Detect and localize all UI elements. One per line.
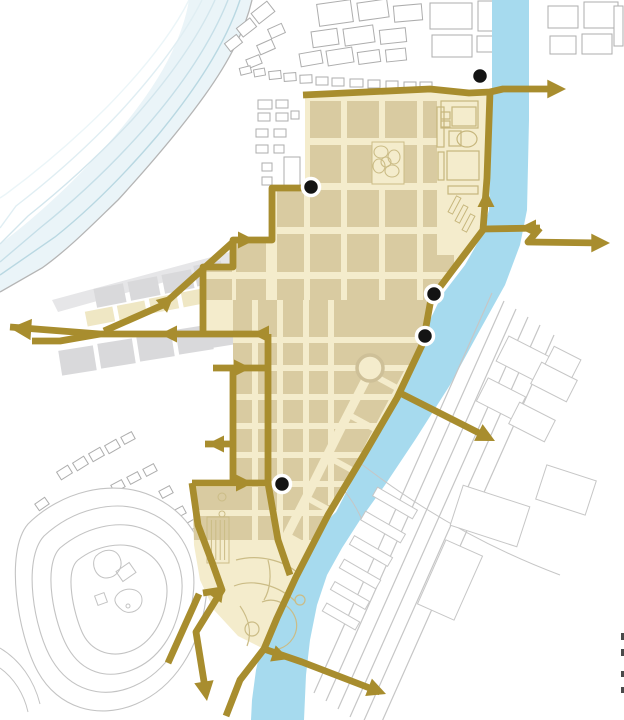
riverfront-building bbox=[322, 603, 359, 630]
building bbox=[256, 145, 268, 153]
building bbox=[317, 0, 354, 26]
building bbox=[379, 28, 406, 45]
park-block bbox=[372, 142, 404, 184]
riverfront-building bbox=[349, 536, 392, 567]
location-dot bbox=[274, 476, 291, 493]
plaza-circle bbox=[357, 355, 383, 381]
city-block bbox=[236, 190, 266, 227]
building bbox=[121, 432, 135, 445]
building bbox=[430, 3, 472, 29]
building bbox=[57, 465, 73, 480]
route-west-artery-fork bbox=[32, 334, 100, 341]
building bbox=[262, 163, 272, 171]
building bbox=[253, 68, 265, 77]
building bbox=[276, 113, 288, 121]
building bbox=[257, 39, 276, 55]
city-block bbox=[385, 101, 417, 138]
building bbox=[584, 2, 618, 28]
building bbox=[251, 1, 275, 24]
building bbox=[262, 177, 272, 185]
building bbox=[332, 78, 344, 86]
building bbox=[256, 129, 268, 137]
direction-arrow-icon bbox=[207, 436, 224, 453]
pier-block bbox=[85, 306, 115, 326]
direction-arrow-icon bbox=[194, 680, 216, 702]
riverfront-building bbox=[373, 487, 418, 519]
building bbox=[316, 77, 328, 85]
building bbox=[343, 25, 375, 46]
building bbox=[357, 0, 389, 21]
building bbox=[274, 129, 286, 137]
building bbox=[239, 66, 251, 75]
direction-arrow-icon bbox=[9, 317, 32, 340]
building bbox=[284, 73, 297, 82]
riverfront-building bbox=[339, 559, 380, 589]
building bbox=[357, 50, 380, 65]
city-block bbox=[277, 190, 304, 227]
building bbox=[432, 35, 472, 57]
location-dot bbox=[417, 328, 434, 345]
building bbox=[291, 111, 299, 119]
warehouse bbox=[417, 540, 482, 620]
building bbox=[258, 113, 270, 121]
location-dot bbox=[426, 286, 443, 303]
city-block bbox=[347, 101, 379, 138]
building bbox=[274, 145, 284, 153]
building bbox=[127, 472, 141, 485]
city-block bbox=[310, 234, 341, 272]
city-block bbox=[310, 279, 341, 300]
direction-arrow-icon bbox=[591, 234, 610, 253]
building bbox=[548, 6, 578, 28]
building bbox=[143, 464, 157, 477]
warehouse bbox=[450, 485, 530, 547]
buildings-north bbox=[299, 0, 498, 67]
direction-arrow-icon bbox=[365, 679, 389, 703]
building bbox=[276, 100, 288, 108]
city-block bbox=[206, 145, 232, 183]
city-block bbox=[347, 279, 379, 300]
city-block bbox=[310, 145, 341, 183]
city-map bbox=[0, 0, 624, 720]
city-block bbox=[277, 234, 304, 272]
buildings-shore-row bbox=[239, 66, 432, 90]
building bbox=[300, 75, 312, 83]
riverfront-building bbox=[330, 582, 369, 610]
building bbox=[258, 100, 272, 109]
building bbox=[393, 4, 422, 22]
building bbox=[299, 50, 323, 67]
building bbox=[105, 439, 121, 453]
city-block bbox=[310, 101, 341, 138]
city-block bbox=[347, 190, 379, 227]
building bbox=[582, 34, 612, 54]
building bbox=[89, 447, 105, 461]
building bbox=[268, 23, 286, 38]
building bbox=[614, 6, 623, 46]
building bbox=[311, 28, 339, 47]
location-dot bbox=[303, 179, 320, 196]
building bbox=[326, 47, 354, 66]
map-canvas bbox=[0, 0, 624, 720]
city-block bbox=[385, 279, 417, 300]
bay-water bbox=[0, 0, 252, 292]
direction-arrow-icon bbox=[547, 80, 566, 99]
pier-block bbox=[58, 345, 96, 375]
building bbox=[350, 79, 363, 87]
city-block bbox=[347, 234, 379, 272]
pier-block bbox=[93, 283, 126, 307]
location-dot bbox=[472, 68, 489, 85]
warehouse bbox=[536, 465, 597, 515]
building bbox=[73, 456, 89, 471]
building bbox=[269, 70, 282, 79]
pier-block bbox=[97, 338, 135, 368]
building bbox=[368, 80, 380, 88]
city-block bbox=[206, 279, 232, 300]
buildings-across-river bbox=[548, 2, 623, 54]
city-block bbox=[206, 190, 232, 227]
building bbox=[284, 157, 300, 187]
city-block bbox=[206, 101, 232, 138]
building bbox=[550, 36, 576, 54]
hill-contours bbox=[0, 488, 207, 712]
building bbox=[159, 486, 173, 499]
city-block bbox=[385, 234, 417, 272]
hill-detail bbox=[0, 668, 28, 712]
city-block bbox=[236, 279, 266, 300]
city-block bbox=[385, 190, 417, 227]
city-block bbox=[277, 279, 304, 300]
building bbox=[385, 48, 406, 62]
buildings-west-column bbox=[256, 100, 300, 196]
